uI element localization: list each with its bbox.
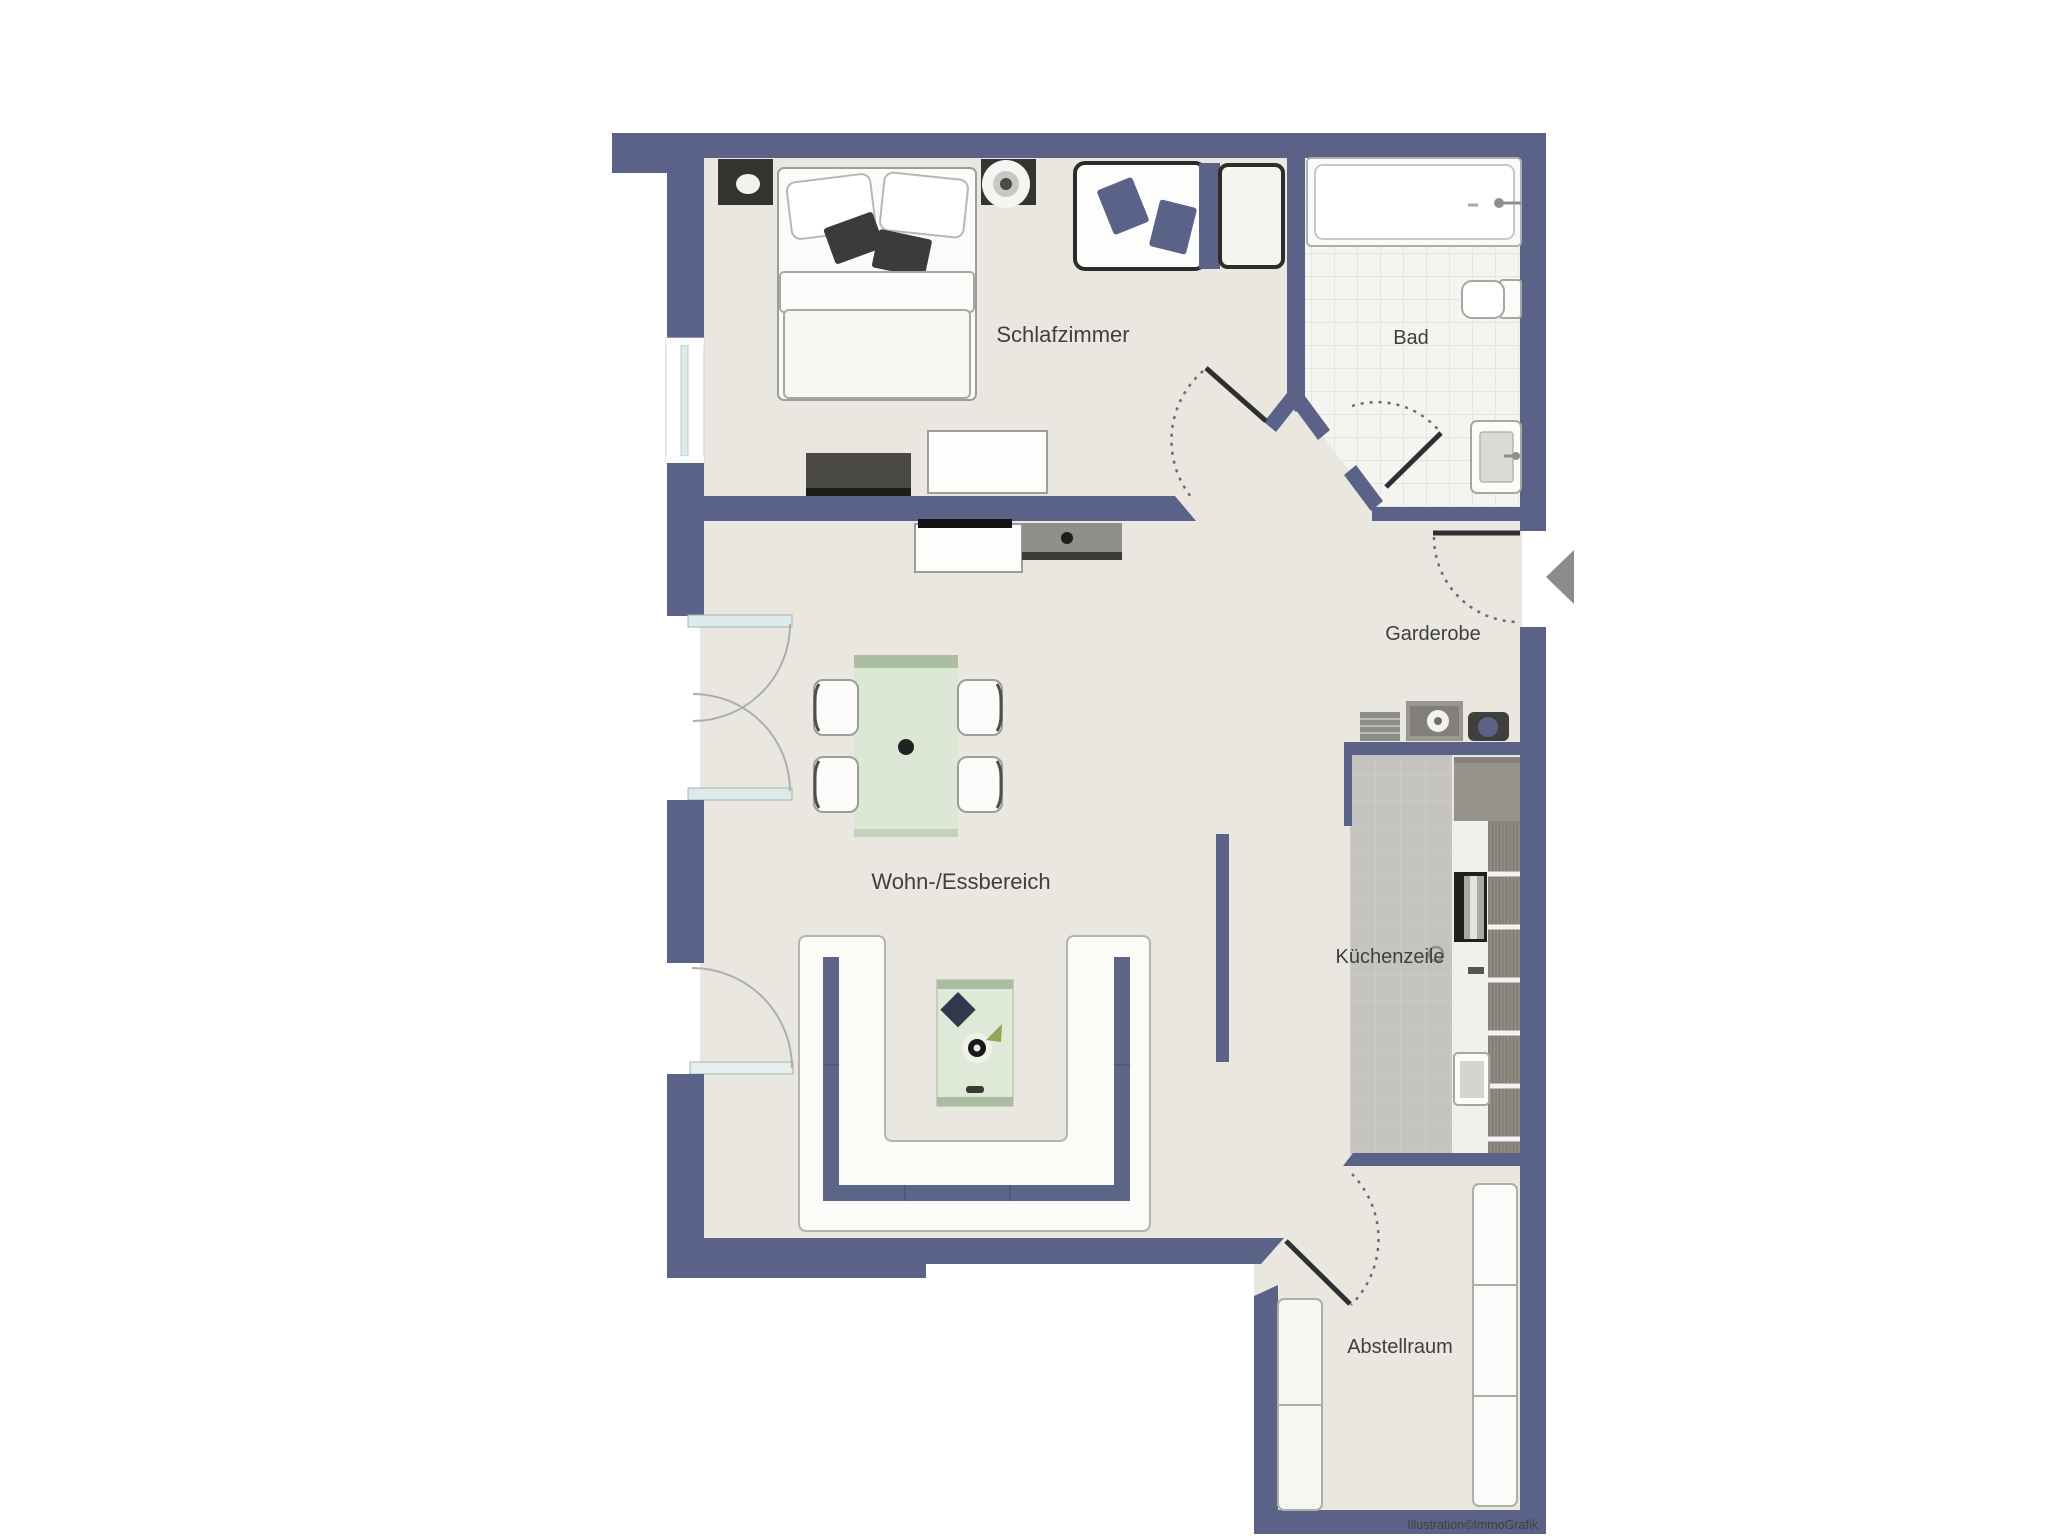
svg-text:Schlafzimmer: Schlafzimmer: [996, 322, 1129, 347]
svg-text:Wohn-/Essbereich: Wohn-/Essbereich: [871, 869, 1050, 894]
svg-text:Abstellraum: Abstellraum: [1347, 1336, 1453, 1358]
svg-text:Küchenzeile: Küchenzeile: [1336, 946, 1445, 968]
svg-text:Bad: Bad: [1393, 327, 1429, 349]
svg-text:Garderobe: Garderobe: [1385, 623, 1481, 645]
svg-text:Illustration©ImmoGrafik: Illustration©ImmoGrafik: [1407, 1518, 1539, 1532]
